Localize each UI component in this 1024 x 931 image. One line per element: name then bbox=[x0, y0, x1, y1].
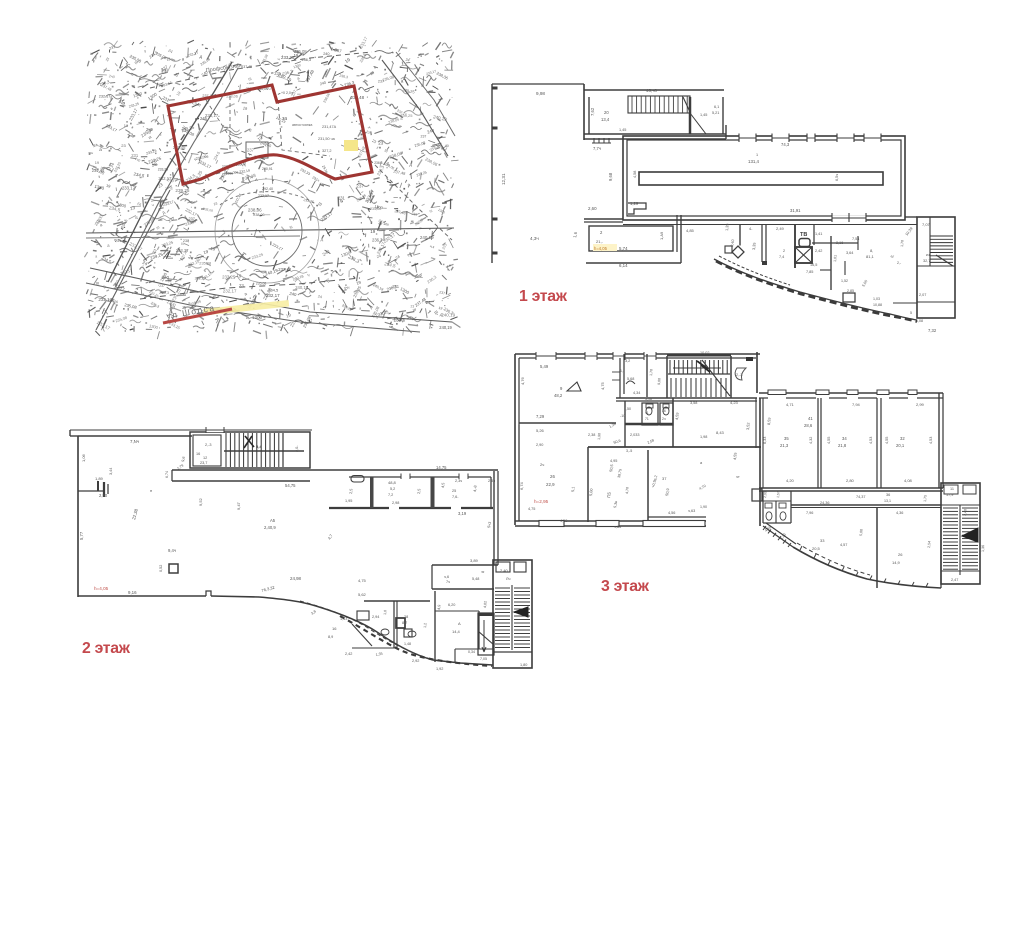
svg-text:290,91: 290,91 bbox=[262, 167, 273, 171]
svg-text:4,70: 4,70 bbox=[625, 487, 630, 494]
svg-text:4,75: 4,75 bbox=[600, 381, 605, 390]
svg-text:2,5: 2,5 bbox=[417, 488, 421, 494]
svg-text:36: 36 bbox=[662, 409, 666, 413]
svg-text:4,5: 4,5 bbox=[441, 482, 445, 488]
svg-text:1: 1 bbox=[756, 153, 758, 157]
svg-text:1,80: 1,80 bbox=[520, 663, 527, 667]
svg-text:3,44: 3,44 bbox=[109, 468, 113, 475]
svg-text:6,14: 6,14 bbox=[619, 263, 628, 268]
svg-text:20,1: 20,1 bbox=[896, 443, 905, 448]
svg-text:9,4ч: 9,4ч bbox=[168, 548, 176, 553]
svg-text:4,36: 4,36 bbox=[896, 511, 903, 515]
svg-text:1,45: 1,45 bbox=[619, 128, 626, 132]
svg-text:24,98: 24,98 bbox=[290, 576, 302, 581]
svg-text:Лч: Лч bbox=[506, 577, 510, 581]
svg-text:3,52: 3,52 bbox=[746, 422, 751, 430]
svg-text:2,90: 2,90 bbox=[99, 493, 108, 498]
svg-text:2,47: 2,47 bbox=[951, 578, 958, 582]
svg-text:h=2,95: h=2,95 bbox=[534, 499, 549, 504]
svg-text:2 этаж: 2 этаж bbox=[82, 640, 131, 657]
svg-text:4,-8: 4,-8 bbox=[473, 485, 478, 492]
svg-text:41: 41 bbox=[808, 416, 813, 421]
svg-text:233,25: 233,25 bbox=[222, 275, 236, 280]
svg-text:0,52: 0,52 bbox=[159, 565, 163, 572]
svg-text:24: 24 bbox=[317, 294, 322, 299]
svg-text:0,34: 0,34 bbox=[468, 650, 475, 654]
svg-text:4,55: 4,55 bbox=[827, 437, 831, 444]
svg-text:237,48: 237,48 bbox=[278, 267, 291, 272]
svg-text:22,9: 22,9 bbox=[546, 482, 555, 487]
svg-text:16: 16 bbox=[332, 626, 337, 631]
svg-text:4,3ч: 4,3ч bbox=[530, 236, 539, 241]
svg-text:24,36: 24,36 bbox=[820, 501, 830, 505]
svg-text:2,40: 2,40 bbox=[963, 509, 968, 516]
svg-text:16: 16 bbox=[196, 452, 200, 456]
svg-text:2,42: 2,42 bbox=[345, 652, 352, 656]
svg-text:4,53: 4,53 bbox=[869, 437, 873, 444]
svg-text:7,32: 7,32 bbox=[928, 328, 937, 333]
svg-text:1,89: 1,89 bbox=[95, 476, 104, 481]
svg-text:1,35: 1,35 bbox=[725, 223, 730, 231]
svg-text:32,7: 32,7 bbox=[923, 259, 930, 263]
svg-text:2,90: 2,90 bbox=[536, 443, 543, 447]
svg-text:2ч: 2ч bbox=[540, 462, 544, 467]
svg-text:2,033: 2,033 bbox=[630, 433, 640, 437]
svg-text:ч: ч bbox=[116, 303, 118, 307]
svg-text:2,16: 2,16 bbox=[836, 241, 843, 245]
svg-text:8: 8 bbox=[481, 571, 485, 573]
svg-text:7,29: 7,29 bbox=[536, 414, 545, 419]
svg-text:9,00: 9,00 bbox=[657, 378, 662, 385]
svg-text:21,8: 21,8 bbox=[838, 443, 847, 448]
svg-text:54,75: 54,75 bbox=[285, 483, 296, 488]
svg-text:1,48: 1,48 bbox=[404, 642, 411, 646]
svg-text:7,6-: 7,6- bbox=[452, 495, 459, 499]
svg-text:239,25: 239,25 bbox=[400, 113, 413, 118]
svg-text:1,41: 1,41 bbox=[815, 232, 822, 236]
svg-text:4,85: 4,85 bbox=[686, 228, 695, 233]
svg-text:26: 26 bbox=[550, 474, 555, 479]
svg-text:ч1: ч1 bbox=[645, 411, 649, 415]
svg-text:2,60: 2,60 bbox=[588, 206, 597, 211]
svg-text:3,-5: 3,-5 bbox=[626, 449, 632, 453]
svg-text:8,7: 8,7 bbox=[402, 621, 407, 625]
svg-text:5,4: 5,4 bbox=[256, 444, 262, 449]
svg-text:2,42: 2,42 bbox=[815, 249, 822, 253]
svg-text:245: 245 bbox=[200, 116, 208, 121]
svg-text:9,68: 9,68 bbox=[608, 172, 613, 181]
svg-text:ч,6: ч,6 bbox=[444, 575, 449, 579]
svg-text:5,68: 5,68 bbox=[627, 377, 634, 381]
svg-text:4,08: 4,08 bbox=[904, 478, 913, 483]
svg-text:4,55: 4,55 bbox=[885, 437, 889, 444]
svg-text:34: 34 bbox=[842, 436, 847, 441]
svg-text:2,0-: 2,0- bbox=[295, 445, 299, 452]
svg-text:235,08: 235,08 bbox=[199, 260, 211, 265]
svg-text:3,58: 3,58 bbox=[690, 401, 697, 405]
svg-text:9,16: 9,16 bbox=[128, 590, 137, 595]
svg-text:4,20: 4,20 bbox=[786, 478, 795, 483]
svg-text:7,05: 7,05 bbox=[480, 657, 487, 661]
svg-text:24: 24 bbox=[426, 300, 431, 305]
svg-text:5,21: 5,21 bbox=[712, 111, 719, 115]
svg-text:4,9: 4,9 bbox=[437, 604, 441, 610]
svg-text:3,64: 3,64 bbox=[846, 251, 853, 255]
svg-text:4,32: 4,32 bbox=[809, 437, 813, 444]
svg-text:33: 33 bbox=[820, 538, 825, 543]
svg-text:4,57: 4,57 bbox=[840, 543, 847, 547]
svg-text:1,13: 1,13 bbox=[340, 617, 347, 621]
svg-text:5,49: 5,49 bbox=[540, 364, 549, 369]
svg-text:81,1: 81,1 bbox=[866, 254, 875, 259]
svg-text:231: 231 bbox=[115, 238, 122, 243]
svg-text:за: за bbox=[282, 116, 287, 122]
svg-text:1,70: 1,70 bbox=[649, 369, 654, 376]
svg-text:4,95: 4,95 bbox=[610, 459, 617, 463]
svg-text:236,3: 236,3 bbox=[372, 237, 383, 242]
svg-text:5,26: 5,26 bbox=[536, 428, 545, 433]
svg-text:24: 24 bbox=[405, 58, 410, 63]
svg-text:1,45: 1,45 bbox=[700, 113, 707, 117]
svg-text:2,40: 2,40 bbox=[500, 568, 509, 573]
svg-text:3 этаж: 3 этаж bbox=[601, 578, 650, 595]
svg-text:1,50: 1,50 bbox=[624, 407, 631, 411]
svg-text:а: а bbox=[95, 255, 97, 259]
svg-text:2,00: 2,00 bbox=[763, 491, 768, 498]
svg-text:26: 26 bbox=[898, 552, 903, 557]
svg-text:4,58: 4,58 bbox=[633, 171, 637, 178]
svg-text:35: 35 bbox=[784, 436, 789, 441]
svg-text:3,2: 3,2 bbox=[625, 359, 630, 363]
svg-text:1,06: 1,06 bbox=[81, 453, 86, 462]
svg-text:2,92: 2,92 bbox=[412, 659, 419, 663]
svg-text:238,06: 238,06 bbox=[253, 213, 264, 217]
svg-text:1,29: 1,29 bbox=[630, 201, 639, 206]
svg-text:233,17: 233,17 bbox=[122, 185, 136, 190]
svg-text:4,75: 4,75 bbox=[528, 507, 535, 511]
svg-text:36: 36 bbox=[886, 493, 890, 497]
svg-text:1,08: 1,08 bbox=[916, 319, 923, 323]
svg-text:236,3: 236,3 bbox=[374, 161, 382, 165]
svg-text:5,00: 5,00 bbox=[589, 488, 594, 496]
svg-text:237: 237 bbox=[247, 147, 255, 152]
svg-text:А: А bbox=[255, 177, 258, 182]
svg-text:5,1: 5,1 bbox=[571, 486, 575, 492]
svg-text:6,1: 6,1 bbox=[714, 105, 719, 109]
svg-text:7,54: 7,54 bbox=[852, 237, 859, 241]
svg-text:ч: ч bbox=[347, 285, 349, 290]
svg-text:23: 23 bbox=[300, 53, 304, 57]
svg-text:19: 19 bbox=[95, 160, 99, 165]
svg-text:6,20: 6,20 bbox=[448, 603, 455, 607]
svg-text:чт: чт bbox=[736, 475, 740, 479]
svg-text:3,35: 3,35 bbox=[752, 242, 757, 250]
svg-text:240: 240 bbox=[323, 52, 329, 56]
svg-text:32: 32 bbox=[900, 436, 905, 441]
svg-text:6,74: 6,74 bbox=[165, 471, 169, 478]
svg-text:4,82: 4,82 bbox=[483, 601, 488, 608]
svg-text:5,08: 5,08 bbox=[859, 529, 864, 536]
svg-text:7,85: 7,85 bbox=[806, 270, 813, 274]
svg-text:2ч: 2ч bbox=[662, 417, 666, 421]
svg-text:2,5: 2,5 bbox=[349, 488, 353, 494]
svg-text:48,8: 48,8 bbox=[388, 480, 397, 485]
svg-text:кч: кч bbox=[926, 253, 930, 257]
svg-text:237: 237 bbox=[421, 135, 427, 139]
svg-text:1,75: 1,75 bbox=[923, 495, 928, 502]
svg-text:5,18: 5,18 bbox=[645, 397, 652, 401]
svg-text:327,2: 327,2 bbox=[322, 149, 332, 153]
svg-text:232,17: 232,17 bbox=[258, 194, 269, 198]
svg-text:-10: -10 bbox=[620, 414, 625, 418]
svg-text:3,89: 3,89 bbox=[470, 558, 479, 563]
svg-text:28: 28 bbox=[404, 615, 408, 619]
svg-text:1 этаж: 1 этаж bbox=[519, 288, 568, 305]
svg-text:7,94: 7,94 bbox=[852, 402, 861, 407]
svg-text:Б: Б bbox=[135, 215, 138, 220]
svg-text:231,47А: 231,47А bbox=[322, 125, 337, 129]
svg-text:7,Nч: 7,Nч bbox=[130, 439, 139, 444]
svg-text:6,5ч: 6,5ч bbox=[835, 174, 839, 181]
svg-text:19: 19 bbox=[294, 53, 299, 58]
svg-text:ч,63: ч,63 bbox=[688, 509, 695, 513]
svg-text:48,2: 48,2 bbox=[554, 393, 563, 398]
svg-text:25: 25 bbox=[452, 489, 456, 493]
svg-text:2,40,9: 2,40,9 bbox=[264, 525, 276, 530]
svg-text:2,94: 2,94 bbox=[372, 615, 379, 619]
svg-text:5,2: 5,2 bbox=[390, 487, 395, 491]
svg-text:6,74: 6,74 bbox=[519, 481, 524, 490]
svg-text:7,07: 7,07 bbox=[922, 222, 931, 227]
svg-text:4,23: 4,23 bbox=[730, 400, 739, 405]
svg-text:1,98: 1,98 bbox=[700, 435, 707, 439]
svg-text:5: 5 bbox=[910, 311, 912, 315]
svg-text:7,4: 7,4 bbox=[779, 255, 784, 259]
svg-text:4,76: 4,76 bbox=[520, 376, 525, 385]
svg-text:6,33: 6,33 bbox=[763, 437, 767, 444]
svg-text:4,55: 4,55 bbox=[733, 452, 738, 460]
svg-text:ч: ч bbox=[187, 238, 189, 243]
svg-text:1,90: 1,90 bbox=[597, 433, 602, 440]
svg-text:1,36: 1,36 bbox=[981, 545, 985, 552]
svg-text:31,91: 31,91 bbox=[790, 208, 801, 213]
svg-text:19: 19 bbox=[124, 123, 129, 128]
svg-text:233,17: 233,17 bbox=[176, 248, 189, 253]
svg-text:2,07: 2,07 bbox=[919, 293, 926, 297]
svg-text:III: III bbox=[181, 242, 184, 246]
svg-text:231: 231 bbox=[338, 195, 346, 200]
svg-text:1,01: 1,01 bbox=[833, 255, 838, 262]
svg-text:4,75: 4,75 bbox=[358, 578, 367, 583]
svg-text:2,85: 2,85 bbox=[847, 289, 854, 293]
svg-text:4,58: 4,58 bbox=[560, 519, 567, 523]
svg-text:1,92: 1,92 bbox=[436, 667, 443, 671]
svg-text:1,03: 1,03 bbox=[873, 297, 880, 301]
svg-text:7,2: 7,2 bbox=[388, 493, 393, 497]
svg-text:2,-3: 2,-3 bbox=[205, 443, 212, 447]
svg-text:292,40: 292,40 bbox=[262, 187, 273, 191]
svg-text:н: н bbox=[150, 488, 152, 493]
svg-text:ч: ч bbox=[236, 110, 238, 114]
svg-text:1,0: 1,0 bbox=[383, 610, 387, 615]
svg-text:46,ч8: 46,ч8 bbox=[646, 88, 657, 93]
svg-text:21,-: 21,- bbox=[596, 239, 604, 244]
svg-text:71: 71 bbox=[645, 417, 649, 421]
svg-text:17,9: 17,9 bbox=[946, 493, 953, 497]
svg-text:7,62: 7,62 bbox=[590, 107, 595, 116]
svg-text:2,38: 2,38 bbox=[588, 433, 595, 437]
svg-text:13,4: 13,4 bbox=[601, 117, 610, 122]
svg-text:10,88: 10,88 bbox=[873, 303, 882, 307]
svg-text:9,98: 9,98 bbox=[536, 91, 545, 96]
svg-text:ч: ч bbox=[307, 272, 309, 277]
svg-text:2,98: 2,98 bbox=[392, 501, 399, 505]
svg-text:а: а bbox=[359, 307, 361, 311]
svg-text:ч,83: ч,83 bbox=[614, 525, 621, 529]
svg-text:23,7: 23,7 bbox=[200, 461, 207, 465]
svg-text:4,53: 4,53 bbox=[929, 437, 933, 444]
svg-text:5,77: 5,77 bbox=[79, 531, 84, 540]
svg-text:10,02: 10,02 bbox=[700, 351, 710, 355]
svg-text:9,47: 9,47 bbox=[236, 501, 241, 510]
svg-text:2,54: 2,54 bbox=[927, 541, 932, 548]
svg-text:74,37: 74,37 bbox=[856, 495, 866, 499]
svg-text:12: 12 bbox=[203, 456, 207, 460]
svg-text:8,9: 8,9 bbox=[328, 635, 333, 639]
svg-text:2,3ч: 2,3ч bbox=[455, 479, 462, 483]
svg-text:h=4,05: h=4,05 bbox=[594, 246, 608, 251]
svg-text:2,99: 2,99 bbox=[916, 402, 925, 407]
svg-text:2,49: 2,49 bbox=[776, 226, 785, 231]
svg-text:1,95: 1,95 bbox=[345, 499, 352, 503]
svg-text:231,50 ча: 231,50 ча bbox=[318, 137, 336, 141]
svg-text:16,5: 16,5 bbox=[810, 263, 817, 267]
svg-text:7,7ч: 7,7ч bbox=[593, 146, 601, 151]
svg-text:2ч0: 2ч0 bbox=[161, 68, 168, 73]
svg-text:23: 23 bbox=[121, 143, 126, 148]
svg-text:2,5ч: 2,5ч bbox=[488, 479, 495, 483]
svg-text:1300: 1300 bbox=[252, 315, 263, 320]
svg-text:14,75: 14,75 bbox=[436, 465, 447, 470]
svg-text:28,6: 28,6 bbox=[804, 423, 813, 428]
svg-text:ТВ: ТВ bbox=[800, 232, 807, 238]
svg-text:240,19: 240,19 bbox=[420, 235, 434, 240]
svg-text:+0 2,0ч: +0 2,0ч bbox=[281, 91, 293, 95]
svg-text:автостоянка: автостоянка bbox=[292, 123, 312, 127]
svg-text:h=4,05: h=4,05 bbox=[94, 586, 109, 591]
svg-text:237: 237 bbox=[378, 80, 384, 84]
svg-text:20: 20 bbox=[604, 110, 609, 115]
svg-text:20,5: 20,5 bbox=[812, 546, 821, 551]
svg-text:1,70: 1,70 bbox=[900, 240, 905, 247]
svg-text:4,34: 4,34 bbox=[633, 391, 640, 395]
svg-text:А: А bbox=[458, 621, 461, 626]
svg-text:1,57: 1,57 bbox=[776, 491, 781, 498]
svg-text:11: 11 bbox=[950, 487, 954, 491]
svg-text:7,96: 7,96 bbox=[806, 511, 813, 515]
svg-text:8,: 8, bbox=[870, 248, 873, 253]
svg-text:1,52: 1,52 bbox=[841, 279, 848, 283]
svg-text:д: д bbox=[169, 277, 172, 282]
svg-text:12,31: 12,31 bbox=[501, 173, 506, 185]
svg-text:2: 2 bbox=[783, 249, 785, 253]
svg-text:2,80: 2,80 bbox=[846, 478, 855, 483]
svg-text:7ч: 7ч bbox=[446, 580, 450, 584]
svg-text:131,4: 131,4 bbox=[748, 159, 760, 164]
svg-text:5,74: 5,74 bbox=[619, 246, 628, 251]
svg-text:2,-3: 2,-3 bbox=[736, 373, 743, 377]
svg-text:4,59: 4,59 bbox=[675, 412, 680, 420]
svg-text:1,А9: 1,А9 bbox=[659, 231, 664, 240]
svg-text:37: 37 bbox=[662, 476, 667, 481]
svg-text:8,59: 8,59 bbox=[767, 417, 772, 425]
svg-text:д: д bbox=[409, 162, 412, 167]
svg-text:4,56: 4,56 bbox=[668, 511, 675, 515]
svg-text:А5: А5 bbox=[270, 518, 276, 523]
svg-text:9,52: 9,52 bbox=[198, 497, 203, 506]
svg-text:4,71: 4,71 bbox=[786, 402, 795, 407]
svg-text:14,4: 14,4 bbox=[452, 629, 461, 634]
svg-text:13,1: 13,1 bbox=[884, 499, 891, 503]
svg-text:21,3: 21,3 bbox=[780, 443, 789, 448]
svg-text:ч: ч bbox=[390, 234, 392, 238]
svg-text:8,43: 8,43 bbox=[716, 430, 725, 435]
svg-text:14,9: 14,9 bbox=[892, 560, 901, 565]
svg-text:1,90: 1,90 bbox=[700, 505, 707, 509]
svg-text:1,2: 1,2 bbox=[423, 623, 427, 628]
svg-text:232,17: 232,17 bbox=[223, 289, 237, 294]
svg-text:3,19: 3,19 bbox=[458, 511, 467, 516]
svg-text:5,48: 5,48 bbox=[472, 577, 479, 581]
svg-text:5,62: 5,62 bbox=[358, 592, 367, 597]
svg-text:240,19: 240,19 bbox=[439, 325, 452, 330]
svg-text:74,3: 74,3 bbox=[781, 142, 790, 147]
